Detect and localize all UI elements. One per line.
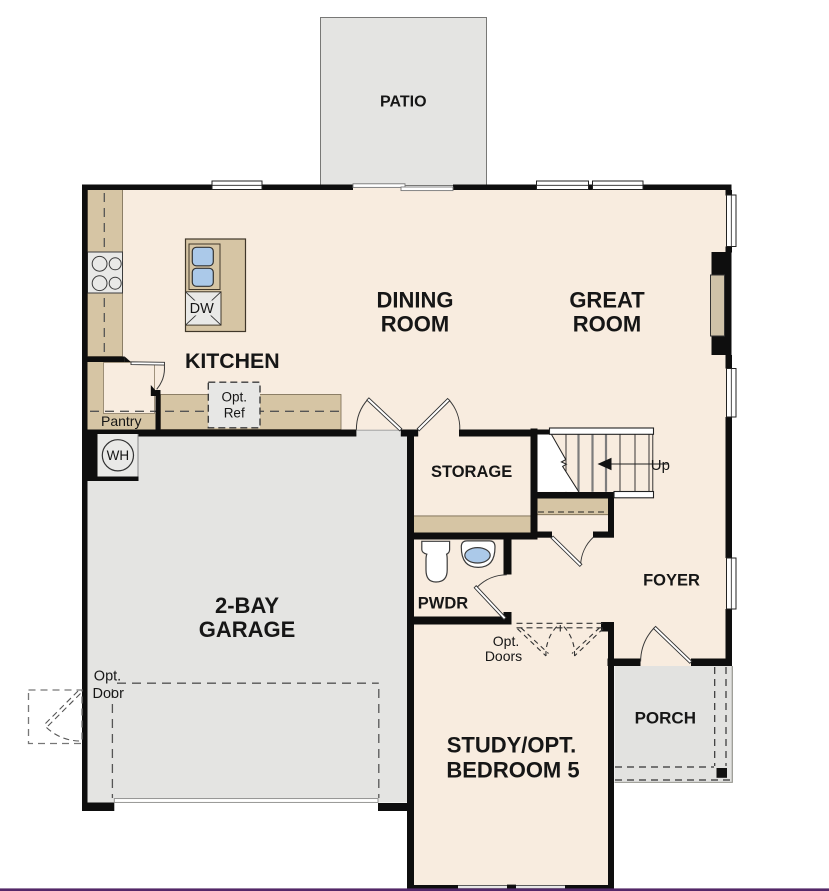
svg-text:Opt.: Opt. (94, 669, 121, 685)
svg-text:BEDROOM 5: BEDROOM 5 (446, 758, 579, 783)
svg-text:STORAGE: STORAGE (431, 463, 512, 481)
svg-text:PORCH: PORCH (635, 708, 696, 727)
svg-text:PWDR: PWDR (418, 594, 468, 612)
svg-text:Ref: Ref (224, 406, 245, 421)
svg-text:Pantry: Pantry (101, 413, 141, 429)
svg-text:KITCHEN: KITCHEN (185, 349, 280, 373)
svg-text:GARAGE: GARAGE (199, 617, 296, 642)
svg-text:DW: DW (190, 301, 214, 317)
svg-text:DINING: DINING (377, 287, 454, 312)
svg-text:Opt.: Opt. (493, 633, 519, 649)
svg-text:GREAT: GREAT (569, 287, 645, 312)
svg-text:Opt.: Opt. (221, 390, 247, 405)
svg-text:ROOM: ROOM (381, 311, 449, 336)
svg-text:STUDY/OPT.: STUDY/OPT. (447, 733, 577, 758)
svg-text:Up: Up (651, 457, 670, 474)
svg-text:PATIO: PATIO (380, 94, 427, 111)
svg-text:2-BAY: 2-BAY (215, 593, 279, 618)
svg-text:Doors: Doors (485, 648, 522, 664)
svg-text:Door: Door (93, 686, 125, 702)
svg-text:WH: WH (107, 448, 130, 463)
svg-text:ROOM: ROOM (573, 311, 641, 336)
svg-text:FOYER: FOYER (643, 572, 700, 590)
